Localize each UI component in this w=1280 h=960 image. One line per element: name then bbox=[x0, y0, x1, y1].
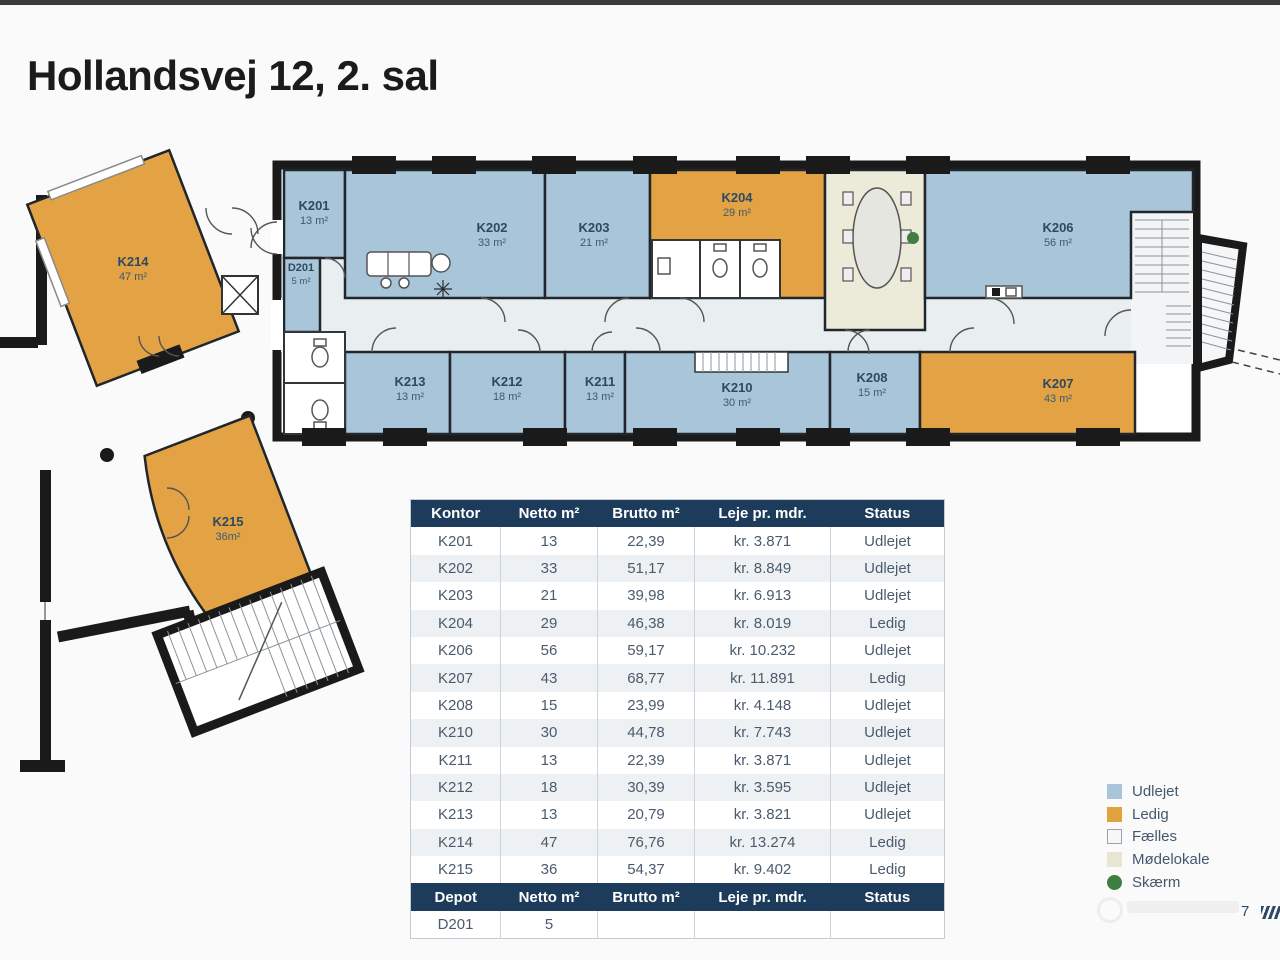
header-kontor: Kontor bbox=[411, 500, 501, 528]
room-area: 13 m² bbox=[586, 391, 614, 403]
room-label: K214 bbox=[117, 254, 149, 269]
room-area: 18 m² bbox=[493, 391, 521, 403]
room-K207 bbox=[920, 352, 1135, 434]
watermark-text bbox=[1127, 901, 1239, 913]
column-dot bbox=[100, 448, 114, 462]
header-leje: Leje pr. mdr. bbox=[695, 883, 831, 910]
room-label: K203 bbox=[578, 220, 609, 235]
header-brutto: Brutto m² bbox=[598, 500, 695, 528]
legend-label: Ledig bbox=[1132, 806, 1169, 823]
cell-netto: 43 bbox=[501, 664, 598, 691]
page-corner-icon bbox=[1261, 906, 1280, 919]
cell-status: Udlejet bbox=[831, 801, 945, 828]
legend-label: Fælles bbox=[1132, 828, 1177, 845]
table-row: K2011322,39kr. 3.871Udlejet bbox=[411, 527, 945, 554]
header-status: Status bbox=[831, 500, 945, 528]
room-label: K201 bbox=[298, 198, 329, 213]
cell-leje: kr. 3.821 bbox=[695, 801, 831, 828]
cell-status: Udlejet bbox=[831, 637, 945, 664]
page-title: Hollandsvej 12, 2. sal bbox=[27, 52, 439, 100]
table-row: K2111322,39kr. 3.871Udlejet bbox=[411, 747, 945, 774]
cell-kontor: D201 bbox=[411, 911, 501, 939]
staircase-southwest bbox=[157, 572, 359, 732]
cell-kontor: K214 bbox=[411, 829, 501, 856]
cell-brutto: 76,76 bbox=[598, 829, 695, 856]
cell-netto: 47 bbox=[501, 829, 598, 856]
cell-netto: 13 bbox=[501, 747, 598, 774]
elevator bbox=[222, 276, 258, 314]
cell-status: Udlejet bbox=[831, 719, 945, 746]
cell-netto: 21 bbox=[501, 582, 598, 609]
cell-brutto: 46,38 bbox=[598, 610, 695, 637]
cell-kontor: K203 bbox=[411, 582, 501, 609]
room-label: K204 bbox=[721, 190, 753, 205]
room-area: 5 m² bbox=[292, 276, 311, 287]
table-row: K2153654,37kr. 9.402Ledig bbox=[411, 856, 945, 883]
table-row: K2042946,38kr. 8.019Ledig bbox=[411, 610, 945, 637]
cell-kontor: K207 bbox=[411, 664, 501, 691]
cell-leje: kr. 7.743 bbox=[695, 719, 831, 746]
room-area: 43 m² bbox=[1044, 393, 1072, 405]
table-row: D2015 bbox=[411, 911, 945, 939]
cell-netto: 5 bbox=[501, 911, 598, 939]
skaerm-swatch-icon bbox=[1107, 875, 1122, 890]
cell-status bbox=[831, 911, 945, 939]
cell-status: Udlejet bbox=[831, 582, 945, 609]
table-row: K2121830,39kr. 3.595Udlejet bbox=[411, 774, 945, 801]
cell-leje: kr. 3.871 bbox=[695, 527, 831, 554]
cell-brutto bbox=[598, 911, 695, 939]
top-bar bbox=[0, 0, 1280, 5]
cell-netto: 18 bbox=[501, 774, 598, 801]
cell-leje: kr. 4.148 bbox=[695, 692, 831, 719]
cell-brutto: 51,17 bbox=[598, 555, 695, 582]
room-label: K212 bbox=[491, 374, 522, 389]
legend-item-faelles: Fælles bbox=[1107, 825, 1210, 848]
cell-kontor: K215 bbox=[411, 856, 501, 883]
watermark-logo-icon bbox=[1097, 897, 1123, 923]
room-label: D201 bbox=[288, 262, 314, 274]
toilets-west bbox=[284, 332, 345, 434]
header-netto: Netto m² bbox=[501, 883, 598, 910]
entrance-gap bbox=[271, 220, 283, 254]
cell-leje bbox=[695, 911, 831, 939]
udlejet-swatch-icon bbox=[1107, 784, 1122, 799]
table-row: K2074368,77kr. 11.891Ledig bbox=[411, 664, 945, 691]
cell-brutto: 39,98 bbox=[598, 582, 695, 609]
cell-status: Udlejet bbox=[831, 747, 945, 774]
cell-leje: kr. 8.849 bbox=[695, 555, 831, 582]
room-area: 36m² bbox=[215, 531, 240, 543]
legend-item-udlejet: Udlejet bbox=[1107, 780, 1210, 803]
cell-status: Ledig bbox=[831, 610, 945, 637]
room-area: 30 m² bbox=[723, 397, 751, 409]
header-depot: Depot bbox=[411, 883, 501, 910]
k206-equipment bbox=[986, 286, 1022, 298]
room-label: K211 bbox=[585, 374, 615, 389]
header-status: Status bbox=[831, 883, 945, 910]
cell-leje: kr. 9.402 bbox=[695, 856, 831, 883]
legend: Udlejet Ledig Fælles Mødelokale Skærm bbox=[1107, 780, 1210, 893]
legend-item-skaerm: Skærm bbox=[1107, 871, 1210, 894]
office-table-wrap: Kontor Netto m² Brutto m² Leje pr. mdr. … bbox=[410, 499, 945, 939]
cell-netto: 15 bbox=[501, 692, 598, 719]
corridor-gap bbox=[271, 300, 283, 350]
room-label: K208 bbox=[856, 370, 887, 385]
room-label: K207 bbox=[1042, 376, 1073, 391]
legend-item-moedelokale: Mødelokale bbox=[1107, 848, 1210, 871]
legend-label: Udlejet bbox=[1132, 783, 1179, 800]
table-row: K2023351,17kr. 8.849Udlejet bbox=[411, 555, 945, 582]
room-area: 47 m² bbox=[119, 271, 147, 283]
office-table: Kontor Netto m² Brutto m² Leje pr. mdr. … bbox=[410, 499, 945, 939]
cell-leje: kr. 3.871 bbox=[695, 747, 831, 774]
page-number: 7 bbox=[1241, 903, 1249, 920]
cell-status: Udlejet bbox=[831, 527, 945, 554]
k210-niche bbox=[695, 352, 788, 372]
cell-brutto: 68,77 bbox=[598, 664, 695, 691]
cell-brutto: 23,99 bbox=[598, 692, 695, 719]
cell-leje: kr. 13.274 bbox=[695, 829, 831, 856]
room-area: 29 m² bbox=[723, 207, 751, 219]
cell-netto: 56 bbox=[501, 637, 598, 664]
header-leje: Leje pr. mdr. bbox=[695, 500, 831, 528]
room-label: K215 bbox=[212, 514, 243, 529]
depot-header-row: Depot Netto m² Brutto m² Leje pr. mdr. S… bbox=[411, 883, 945, 910]
faelles-swatch-icon bbox=[1107, 829, 1122, 844]
cell-kontor: K201 bbox=[411, 527, 501, 554]
cell-leje: kr. 10.232 bbox=[695, 637, 831, 664]
cell-leje: kr. 6.913 bbox=[695, 582, 831, 609]
cell-netto: 13 bbox=[501, 527, 598, 554]
room-K201 bbox=[284, 170, 345, 258]
room-area: 15 m² bbox=[858, 387, 886, 399]
room-area: 13 m² bbox=[396, 391, 424, 403]
cell-netto: 30 bbox=[501, 719, 598, 746]
table-row: K2144776,76kr. 13.274Ledig bbox=[411, 829, 945, 856]
cell-netto: 36 bbox=[501, 856, 598, 883]
cell-status: Ledig bbox=[831, 664, 945, 691]
cell-kontor: K212 bbox=[411, 774, 501, 801]
skaerm-dot bbox=[907, 232, 919, 244]
room-K202 bbox=[345, 170, 545, 298]
cell-brutto: 20,79 bbox=[598, 801, 695, 828]
cell-kontor: K206 bbox=[411, 637, 501, 664]
room-label: K213 bbox=[394, 374, 425, 389]
legend-label: Skærm bbox=[1132, 874, 1180, 891]
cell-kontor: K208 bbox=[411, 692, 501, 719]
cell-kontor: K210 bbox=[411, 719, 501, 746]
page: { "page": { "title": "Hollandsvej 12, 2.… bbox=[0, 0, 1280, 960]
cell-brutto: 22,39 bbox=[598, 747, 695, 774]
cell-leje: kr. 11.891 bbox=[695, 664, 831, 691]
room-area: 33 m² bbox=[478, 237, 506, 249]
cell-brutto: 22,39 bbox=[598, 527, 695, 554]
cell-status: Ledig bbox=[831, 856, 945, 883]
corridor bbox=[281, 298, 1193, 352]
cell-leje: kr. 3.595 bbox=[695, 774, 831, 801]
cell-netto: 29 bbox=[501, 610, 598, 637]
room-area: 21 m² bbox=[580, 237, 608, 249]
cell-kontor: K211 bbox=[411, 747, 501, 774]
header-netto: Netto m² bbox=[501, 500, 598, 528]
cell-brutto: 30,39 bbox=[598, 774, 695, 801]
cell-status: Udlejet bbox=[831, 774, 945, 801]
cell-brutto: 44,78 bbox=[598, 719, 695, 746]
table-header-row: Kontor Netto m² Brutto m² Leje pr. mdr. … bbox=[411, 500, 945, 528]
staircase-annex bbox=[1198, 238, 1280, 374]
cell-kontor: K204 bbox=[411, 610, 501, 637]
room-area: 56 m² bbox=[1044, 237, 1072, 249]
table-row: K2065659,17kr. 10.232Udlejet bbox=[411, 637, 945, 664]
cell-status: Ledig bbox=[831, 829, 945, 856]
cell-brutto: 54,37 bbox=[598, 856, 695, 883]
table-row: K2081523,99kr. 4.148Udlejet bbox=[411, 692, 945, 719]
room-label: K206 bbox=[1042, 220, 1073, 235]
cell-netto: 13 bbox=[501, 801, 598, 828]
room-area: 13 m² bbox=[300, 215, 328, 227]
table-row: K2032139,98kr. 6.913Udlejet bbox=[411, 582, 945, 609]
cell-kontor: K202 bbox=[411, 555, 501, 582]
ledig-swatch-icon bbox=[1107, 807, 1122, 822]
header-brutto: Brutto m² bbox=[598, 883, 695, 910]
room-label: K210 bbox=[721, 380, 752, 395]
moedelokale-swatch-icon bbox=[1107, 852, 1122, 867]
table-row: K2131320,79kr. 3.821Udlejet bbox=[411, 801, 945, 828]
cell-kontor: K213 bbox=[411, 801, 501, 828]
legend-item-ledig: Ledig bbox=[1107, 803, 1210, 826]
cell-status: Udlejet bbox=[831, 555, 945, 582]
cell-netto: 33 bbox=[501, 555, 598, 582]
cell-brutto: 59,17 bbox=[598, 637, 695, 664]
cell-leje: kr. 8.019 bbox=[695, 610, 831, 637]
legend-label: Mødelokale bbox=[1132, 851, 1210, 868]
cell-status: Udlejet bbox=[831, 692, 945, 719]
toilets-central bbox=[652, 240, 780, 298]
room-label: K202 bbox=[476, 220, 507, 235]
table-row: K2103044,78kr. 7.743Udlejet bbox=[411, 719, 945, 746]
